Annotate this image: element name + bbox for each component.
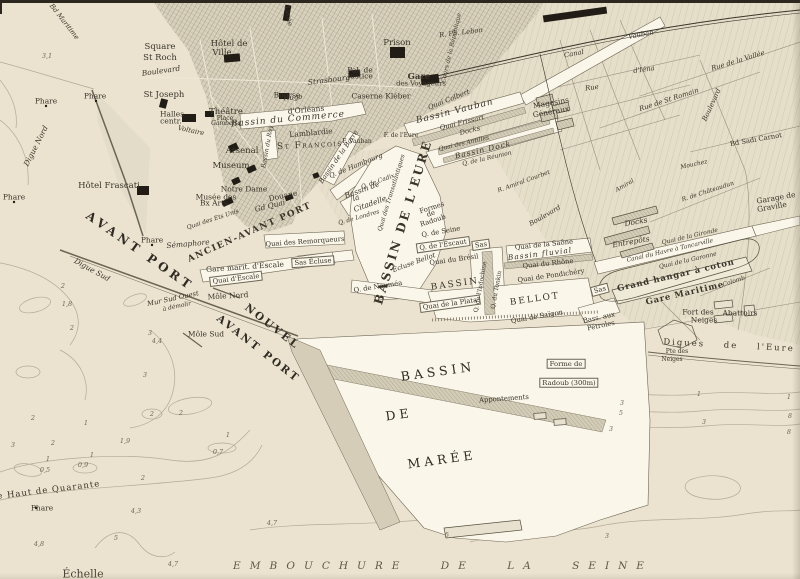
scan-edge-bottom — [0, 573, 800, 579]
scan-edge-right — [792, 0, 800, 579]
map-geometry — [0, 0, 800, 579]
port-map: 3,1PharePharePhareDigue NordDigue Sudle … — [0, 0, 800, 579]
bassin-du-roy — [261, 130, 278, 160]
scan-edge-left — [0, 0, 2, 14]
scan-edge-top — [0, 0, 800, 3]
